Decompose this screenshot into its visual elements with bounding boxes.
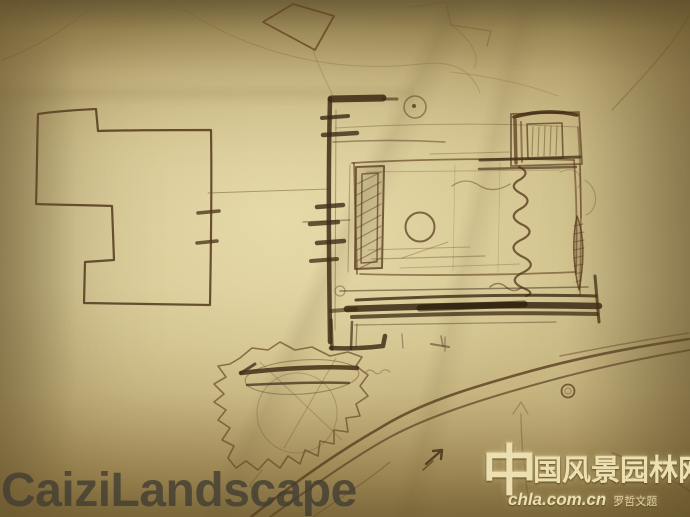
photo-vignette [0, 0, 690, 517]
chla-calligraphy-signature: 罗哲文题 [613, 493, 657, 509]
chla-url: chla.com.cn [508, 490, 606, 510]
chla-site-name: 国风景园林网 [533, 456, 690, 485]
chla-site-url-row: chla.com.cn 罗哲文题 [482, 490, 690, 510]
watermark-caizilandscape: CaiziLandscape [1, 467, 357, 515]
photo-of-sketch: CaiziLandscape 中 国风景园林网 chla.com.cn 罗哲文题 [0, 0, 690, 517]
watermark-chla-logo: 中 国风景园林网 chla.com.cn 罗哲文题 [482, 443, 690, 510]
